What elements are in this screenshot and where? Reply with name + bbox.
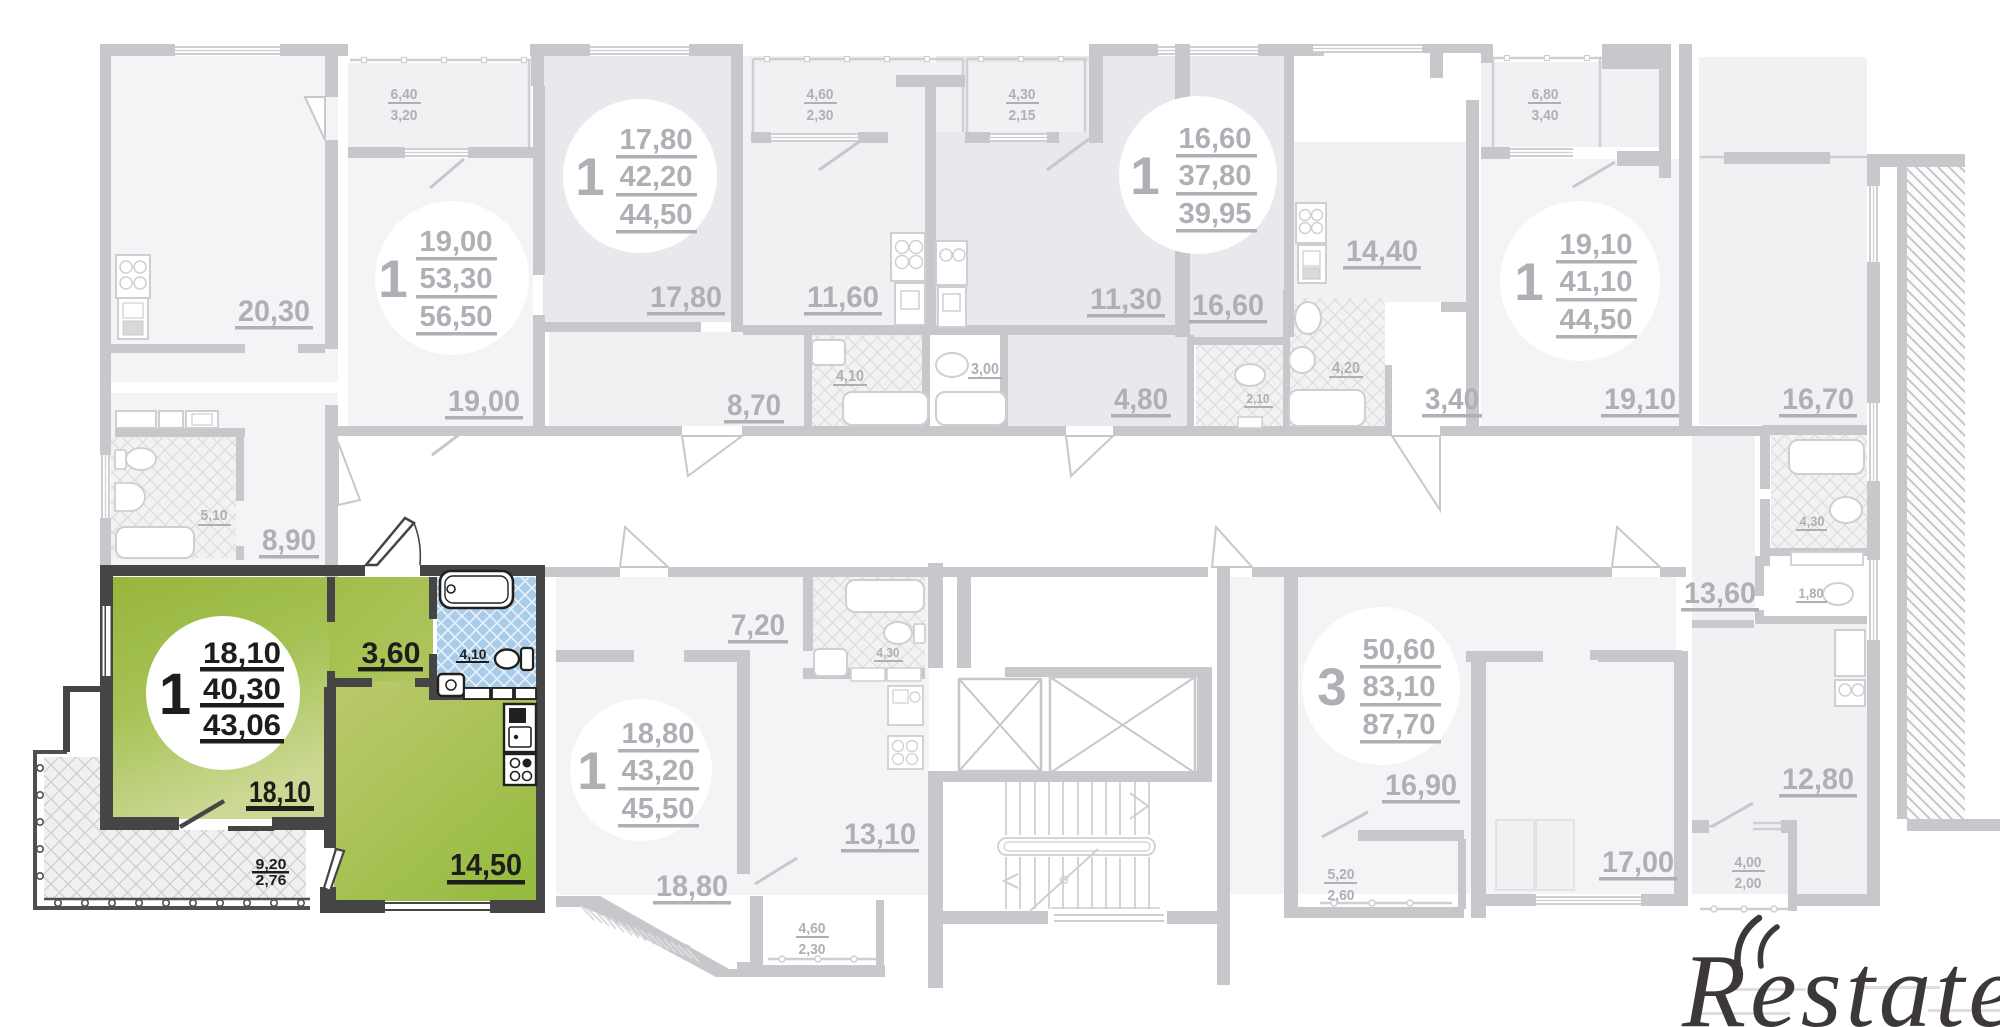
svg-text:53,30: 53,30 — [420, 263, 493, 295]
svg-text:5,20: 5,20 — [1328, 866, 1355, 883]
svg-text:2,30: 2,30 — [807, 107, 834, 124]
svg-text:42,20: 42,20 — [620, 161, 693, 193]
svg-text:43,20: 43,20 — [622, 755, 695, 787]
svg-text:39,95: 39,95 — [1179, 198, 1252, 230]
svg-text:3,20: 3,20 — [391, 107, 418, 124]
svg-text:87,70: 87,70 — [1363, 709, 1436, 741]
svg-text:16,90: 16,90 — [1385, 769, 1457, 802]
svg-text:Restate: Restate — [1681, 932, 2000, 1027]
svg-text:4,30: 4,30 — [877, 645, 900, 660]
svg-text:1: 1 — [159, 662, 191, 727]
svg-text:13,10: 13,10 — [844, 818, 916, 851]
svg-text:16,60: 16,60 — [1192, 289, 1264, 322]
svg-text:43,06: 43,06 — [203, 709, 281, 742]
svg-text:19,00: 19,00 — [420, 226, 493, 258]
svg-text:2,60: 2,60 — [1328, 887, 1355, 904]
svg-text:83,10: 83,10 — [1363, 671, 1436, 703]
svg-text:4,80: 4,80 — [1114, 383, 1168, 416]
svg-text:18,10: 18,10 — [203, 637, 281, 670]
svg-text:7,20: 7,20 — [731, 609, 785, 642]
svg-text:19,10: 19,10 — [1604, 383, 1676, 416]
svg-text:41,10: 41,10 — [1560, 266, 1633, 298]
svg-text:14,50: 14,50 — [450, 847, 522, 882]
svg-text:44,50: 44,50 — [1560, 304, 1633, 336]
svg-text:8,70: 8,70 — [727, 389, 781, 422]
svg-text:4,10: 4,10 — [836, 368, 864, 385]
svg-text:2,00: 2,00 — [1735, 875, 1762, 892]
svg-text:44,50: 44,50 — [620, 199, 693, 231]
svg-text:4,60: 4,60 — [807, 86, 834, 103]
svg-text:11,60: 11,60 — [807, 281, 879, 314]
svg-text:4,10: 4,10 — [460, 647, 487, 662]
svg-text:19,00: 19,00 — [448, 385, 520, 418]
svg-text:13,60: 13,60 — [1684, 577, 1756, 610]
svg-text:2,10: 2,10 — [1247, 391, 1270, 406]
svg-text:18,80: 18,80 — [622, 718, 695, 750]
svg-text:18,80: 18,80 — [656, 870, 728, 903]
svg-text:45,50: 45,50 — [622, 793, 695, 825]
svg-text:40,30: 40,30 — [203, 673, 281, 706]
svg-text:4,60: 4,60 — [799, 920, 826, 937]
svg-text:4,00: 4,00 — [1735, 854, 1762, 871]
svg-text:9,20: 9,20 — [256, 856, 287, 873]
svg-text:3,40: 3,40 — [1532, 107, 1559, 124]
svg-text:6,80: 6,80 — [1532, 86, 1559, 103]
svg-text:2,30: 2,30 — [799, 941, 826, 958]
svg-text:19,10: 19,10 — [1560, 229, 1633, 261]
svg-text:18,10: 18,10 — [249, 776, 311, 809]
svg-text:3,00: 3,00 — [971, 361, 999, 378]
svg-text:16,60: 16,60 — [1179, 123, 1252, 155]
svg-text:4,30: 4,30 — [1009, 86, 1036, 103]
svg-text:6,40: 6,40 — [391, 86, 418, 103]
svg-text:17,80: 17,80 — [650, 281, 722, 314]
svg-text:2,76: 2,76 — [256, 872, 287, 889]
svg-text:8,90: 8,90 — [262, 524, 316, 557]
svg-text:3,60: 3,60 — [362, 637, 421, 670]
svg-text:16,70: 16,70 — [1782, 383, 1854, 416]
svg-text:37,80: 37,80 — [1179, 160, 1252, 192]
svg-text:20,30: 20,30 — [238, 295, 310, 328]
svg-text:2,15: 2,15 — [1009, 107, 1036, 124]
svg-text:1: 1 — [1514, 253, 1543, 312]
svg-text:12,80: 12,80 — [1782, 763, 1854, 796]
svg-text:4,30: 4,30 — [1800, 513, 1825, 529]
svg-text:17,00: 17,00 — [1602, 846, 1674, 879]
svg-text:50,60: 50,60 — [1363, 634, 1436, 666]
svg-text:17,80: 17,80 — [620, 124, 693, 156]
svg-text:1: 1 — [1130, 147, 1159, 206]
svg-text:56,50: 56,50 — [420, 301, 493, 333]
svg-text:1: 1 — [575, 148, 604, 207]
svg-text:1,80: 1,80 — [1799, 585, 1824, 601]
svg-text:1: 1 — [577, 742, 606, 801]
svg-text:11,30: 11,30 — [1090, 283, 1162, 316]
svg-text:4,20: 4,20 — [1332, 360, 1360, 377]
svg-text:5,10: 5,10 — [201, 507, 228, 524]
svg-text:3,40: 3,40 — [1425, 383, 1479, 416]
svg-text:3: 3 — [1317, 658, 1346, 717]
svg-text:14,40: 14,40 — [1346, 235, 1418, 268]
svg-text:1: 1 — [378, 250, 407, 309]
